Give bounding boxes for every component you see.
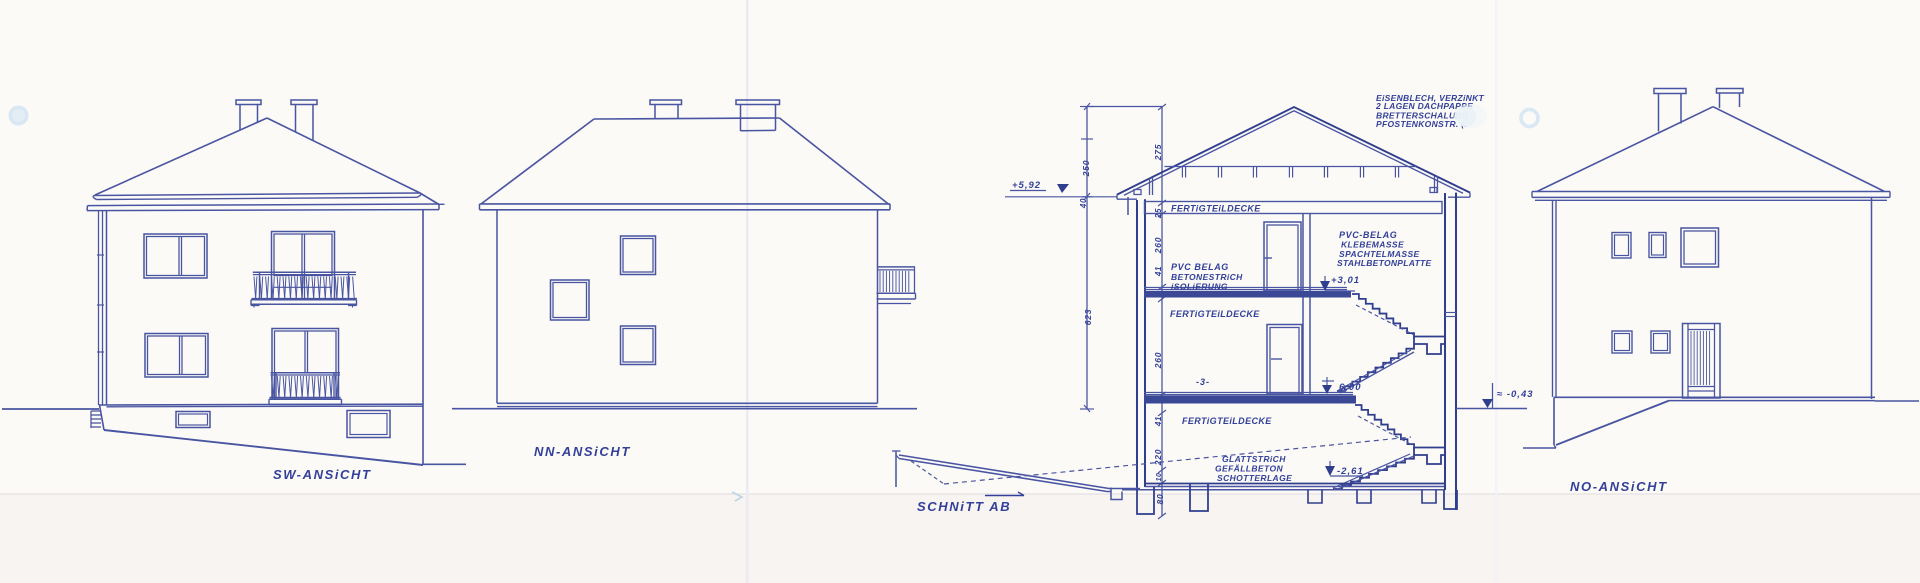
svg-text:250: 250 bbox=[1081, 160, 1091, 178]
svg-text:40: 40 bbox=[1079, 198, 1088, 209]
svg-text:iSOLiERUNG: iSOLiERUNG bbox=[1171, 282, 1228, 292]
svg-text:623: 623 bbox=[1083, 309, 1093, 326]
svg-text:SCHNiTT AB: SCHNiTT AB bbox=[917, 499, 1011, 514]
svg-text:BETONESTRiCH: BETONESTRiCH bbox=[1171, 272, 1243, 282]
svg-text:FERTiGTEiLDECKE: FERTiGTEiLDECKE bbox=[1170, 309, 1260, 319]
svg-text:80: 80 bbox=[1155, 493, 1165, 504]
svg-text:NN-ANSiCHT: NN-ANSiCHT bbox=[534, 444, 631, 459]
svg-text:275: 275 bbox=[1153, 144, 1163, 162]
svg-text:PVC-BELAG: PVC-BELAG bbox=[1339, 230, 1397, 240]
svg-text:GEFÄLLBETON: GEFÄLLBETON bbox=[1215, 464, 1283, 474]
svg-text:+3,01: +3,01 bbox=[1331, 275, 1360, 286]
svg-text:220: 220 bbox=[1153, 449, 1163, 467]
svg-text:≈ -0,43: ≈ -0,43 bbox=[1497, 389, 1534, 400]
svg-text:PFOSTENKONSTR. (.: PFOSTENKONSTR. (. bbox=[1376, 119, 1467, 129]
svg-text:41: 41 bbox=[1154, 266, 1163, 277]
svg-text:FERTiGTEiLDECKE: FERTiGTEiLDECKE bbox=[1171, 204, 1261, 214]
svg-text:41: 41 bbox=[1154, 416, 1163, 427]
svg-text:FERTiGTEiLDECKE: FERTiGTEiLDECKE bbox=[1182, 416, 1272, 426]
svg-text:STAHLBETONPLATTE: STAHLBETONPLATTE bbox=[1337, 258, 1432, 268]
svg-text:GLATTSTRiCH: GLATTSTRiCH bbox=[1222, 454, 1286, 464]
svg-text:SW-ANSiCHT: SW-ANSiCHT bbox=[273, 467, 372, 482]
svg-text:KLEBEMASSE: KLEBEMASSE bbox=[1341, 240, 1404, 250]
svg-text:-3-: -3- bbox=[1196, 377, 1210, 387]
svg-text:-2,61: -2,61 bbox=[1337, 466, 1364, 477]
svg-text:PVC BELAG: PVC BELAG bbox=[1171, 262, 1229, 272]
svg-text:+5,92: +5,92 bbox=[1012, 180, 1041, 191]
svg-text:6,00: 6,00 bbox=[1339, 382, 1362, 393]
svg-text:260: 260 bbox=[1153, 352, 1163, 370]
svg-text:10: 10 bbox=[1156, 473, 1163, 482]
svg-text:NO-ANSiCHT: NO-ANSiCHT bbox=[1570, 479, 1668, 494]
svg-text:SCHOTTERLAGE: SCHOTTERLAGE bbox=[1217, 473, 1292, 483]
svg-text:260: 260 bbox=[1153, 237, 1163, 255]
